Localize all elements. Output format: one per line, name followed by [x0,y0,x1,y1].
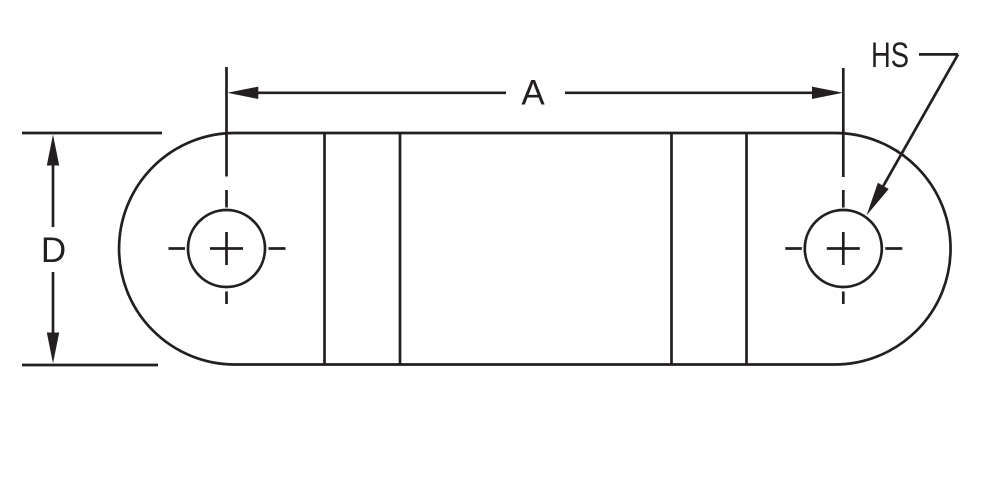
svg-text:HS: HS [871,36,909,75]
svg-text:A: A [521,74,545,113]
svg-text:D: D [41,231,66,270]
